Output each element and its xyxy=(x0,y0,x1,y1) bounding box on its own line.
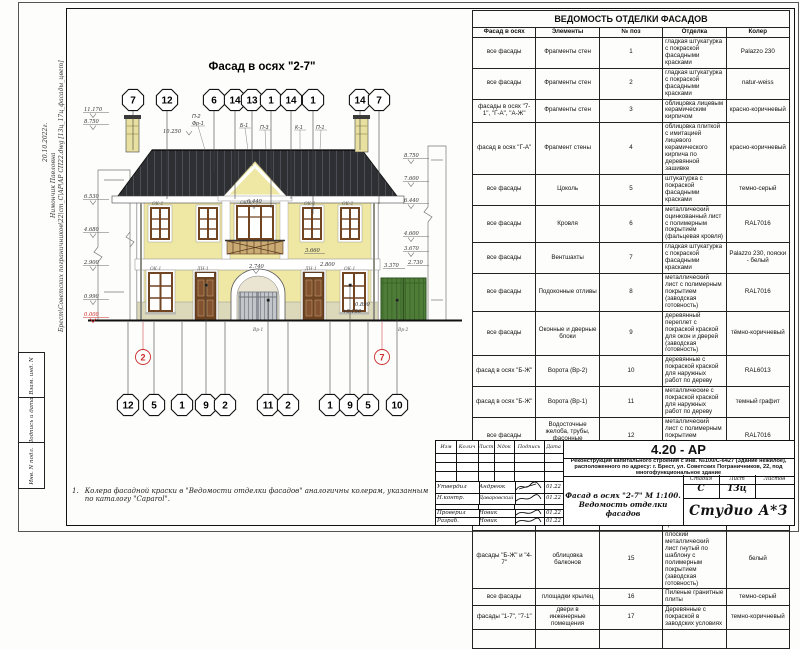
company-logo: Студио А*З xyxy=(683,498,794,525)
table-row: все фасадыЦоколь5штукатурка с покраской … xyxy=(473,174,790,205)
table-cell: металлические с покраской краской для на… xyxy=(663,387,726,418)
table-cell: красно-коричневый xyxy=(726,123,789,175)
table-cell: Фрагмент стены xyxy=(536,123,599,175)
level-mark-zero: 0.000 xyxy=(84,312,100,318)
part-labels: П-2 Фр-1 Б-1 П-3 К-1 П-1 xyxy=(191,114,327,150)
element-tag: ОК-2 xyxy=(304,202,315,207)
axis-bubble: 10 xyxy=(391,401,403,412)
sheet-number: 13ц xyxy=(719,484,756,499)
table-cell: 6 xyxy=(599,205,662,243)
finish-table-header-row: Фасад в осях Элементы № поз Отделка Коле… xyxy=(473,28,790,38)
axis-bubble: 1 xyxy=(179,401,185,412)
table-cell: все фасады xyxy=(473,68,536,99)
table-cell: Подоконные отливы xyxy=(536,274,599,312)
stamp-box-vzam: Взам. инд. N xyxy=(18,352,45,399)
meta-author-vertical: Нимончик Павловна xyxy=(50,153,57,218)
element-tag: ДН-1 xyxy=(304,267,317,272)
chimney-left xyxy=(124,115,141,152)
signature-scribble xyxy=(514,517,545,525)
drawing-sheet: { "sheet": { "meta_vertical": { "date": … xyxy=(0,0,800,533)
table-cell: 3 xyxy=(599,99,662,123)
table-row xyxy=(473,630,790,649)
table-cell: фасад в осях "Б-Ж" xyxy=(473,387,536,418)
level-mark: 8.750 xyxy=(84,119,100,125)
arch-gate xyxy=(231,269,285,320)
table-cell: RAL7016 xyxy=(726,274,789,312)
table-cell: красно-коричневый xyxy=(726,99,789,123)
axis-bubble: 2 xyxy=(285,401,291,412)
axis-bubble: 5 xyxy=(365,401,371,412)
levels-left: 11.170 8.750 6.530 4.680 2.900 0.990 0.0… xyxy=(83,107,109,323)
table-row: все фасадыВентшахты7гладкая штукатурка с… xyxy=(473,243,790,274)
level-mark: 3.670 xyxy=(404,246,420,252)
part-label: П-2 xyxy=(192,114,200,120)
table-row: фасады в осях "7-1", "Г-А", "А-Ж"Фрагмен… xyxy=(473,99,790,123)
red-circle-label: 2 xyxy=(140,353,145,363)
axis-bubble: 1 xyxy=(310,96,316,107)
table-cell: Фрагменты стен xyxy=(536,68,599,99)
table-cell: 4 xyxy=(599,123,662,175)
table-cell: 8 xyxy=(599,274,662,312)
meta-date-vertical: 20.10.2022г. xyxy=(42,123,49,162)
doc-title-cell: Фасад в осях "2-7" М 1:100. Ведомость от… xyxy=(563,475,684,525)
table-cell: гладкая штукатурка с покраской фасадными… xyxy=(663,68,726,99)
overall-dim: 10.250 xyxy=(163,129,192,135)
balcony-balustrade xyxy=(225,241,285,255)
axis-bubble: 14 xyxy=(229,96,241,107)
green-gate xyxy=(381,278,426,320)
table-cell xyxy=(663,630,726,649)
facade-note: 1. Колера фасадной краски в "Ведомости о… xyxy=(72,487,442,503)
logo-text: Студио А*З xyxy=(683,503,794,519)
table-cell xyxy=(536,630,599,649)
facade-title: Фасад в осях "2-7" xyxy=(209,61,316,73)
table-cell: фасады "1-7", "7-1" xyxy=(473,606,536,630)
table-cell: фасады "Б-Ж" и "4-7" xyxy=(473,530,536,589)
table-row: фасады "1-7", "7-1"двери в инженерные по… xyxy=(473,606,790,630)
table-row: все фасадыКровля6металлический оцинкован… xyxy=(473,205,790,243)
table-cell: Palazzo 230, пояски - белый xyxy=(726,243,789,274)
table-cell xyxy=(726,630,789,649)
axis-bubble: 2 xyxy=(222,401,228,412)
table-cell xyxy=(599,630,662,649)
axis-bubble: 9 xyxy=(203,401,209,412)
table-cell: 11 xyxy=(599,387,662,418)
level-mark: 11.170 xyxy=(84,107,103,113)
table-cell: все фасады xyxy=(473,205,536,243)
table-cell: 1 xyxy=(599,38,662,69)
col-header: Колер xyxy=(726,28,789,38)
table-cell: все фасады xyxy=(473,38,536,69)
finish-table-title: ВЕДОМОСТЬ ОТДЕЛКИ ФАСАДОВ xyxy=(473,11,790,28)
document-code: 4.20 - АР xyxy=(563,441,794,459)
table-cell: Фрагменты стен xyxy=(536,99,599,123)
doc-title-line2: Ведомость отделки фасадов xyxy=(563,500,683,518)
table-cell: фасады в осях "7-1", "Г-А", "А-Ж" xyxy=(473,99,536,123)
axis-bubble: 9 xyxy=(347,401,353,412)
table-cell: гладкая штукатурка с покраской фасадными… xyxy=(663,38,726,69)
table-row: фасады "Б-Ж" и "4-7"облицовка балконов15… xyxy=(473,530,790,589)
table-cell: все фасады xyxy=(473,174,536,205)
doc-title-line1: Фасад в осях "2-7" М 1:100. xyxy=(563,491,683,500)
table-cell: 15 xyxy=(599,530,662,589)
level-mark: 6.530 xyxy=(84,194,100,200)
table-cell: темно-серый xyxy=(726,589,789,606)
table-cell: белый xyxy=(726,530,789,589)
sig-role: Разраб. xyxy=(436,517,480,525)
stage-value: С xyxy=(683,484,720,499)
table-cell: двери в инженерные помещения xyxy=(536,606,599,630)
table-row: все фасадыФрагменты стен1гладкая штукату… xyxy=(473,38,790,69)
table-cell: штукатурка с покраской фасадными краскам… xyxy=(663,174,726,205)
table-cell: облицовка лицевым керамическим кирпичом xyxy=(663,99,726,123)
axis-bubble: 7 xyxy=(130,96,136,107)
axis-bubble: 1 xyxy=(268,96,274,107)
axis-bubble: 6 xyxy=(211,96,217,107)
note-number: 1. xyxy=(72,487,79,495)
table-cell: 5 xyxy=(599,174,662,205)
element-tag: ОК-1 xyxy=(344,267,355,272)
level-mark: 7.600 xyxy=(404,176,420,182)
element-tag: ОК-1 xyxy=(150,267,161,272)
level-mark: 4.680 xyxy=(83,227,100,233)
note-text-line1: Колера фасадной краски в "Ведомости отде… xyxy=(85,487,429,495)
table-cell: 2 xyxy=(599,68,662,99)
table-cell: плоский металлический лист гнутый по шаб… xyxy=(663,530,726,589)
balcony-door xyxy=(234,204,276,241)
table-row: фасад в осях "Б-Ж"Ворота (Вр-2)10деревян… xyxy=(473,356,790,387)
col-header: № поз xyxy=(599,28,662,38)
table-row: фасад в осях "Г-А"Фрагмент стены4облицов… xyxy=(473,123,790,175)
level-mark: 0.990 xyxy=(84,294,100,300)
chimney-right xyxy=(353,115,370,152)
stamp-label: Взам. инд. N xyxy=(29,357,35,394)
table-cell: темно-серый xyxy=(726,174,789,205)
facade-drawing: Фасад в осях "2-7" xyxy=(66,10,468,432)
axis-bubble: 13 xyxy=(246,96,258,107)
axis-bubble: 7 xyxy=(376,96,382,107)
sig-name: Новик xyxy=(478,517,516,525)
table-cell: Фрагменты стен xyxy=(536,38,599,69)
table-cell: RAL7016 xyxy=(726,205,789,243)
table-cell: темный графит xyxy=(726,387,789,418)
table-cell: облицовка плиткой с имитацией лицевого к… xyxy=(663,123,726,175)
right-annex-outline xyxy=(424,146,446,320)
table-cell: площадки крылец xyxy=(536,589,599,606)
axis-bubble: 14 xyxy=(285,96,297,107)
element-tag: Вр-1 xyxy=(252,328,263,333)
table-cell: все фасады xyxy=(473,274,536,312)
level-mark: 6.440 xyxy=(404,198,420,204)
element-tag: Вр-2 xyxy=(397,328,409,333)
element-tag: ОК-2 xyxy=(342,202,353,207)
dim-text: +0.150 xyxy=(342,309,362,315)
table-cell: Вентшахты xyxy=(536,243,599,274)
element-tag: ДН-1 xyxy=(196,267,209,272)
stamp-label: Инв. N подл. xyxy=(29,447,35,484)
table-cell: Palazzo 230 xyxy=(726,38,789,69)
table-cell: металлический лист с полимерным покрытие… xyxy=(663,274,726,312)
level-mark: 3.370 xyxy=(384,263,400,269)
table-cell: Оконные и дверные блоки xyxy=(536,311,599,356)
sig-date: 01.22 xyxy=(544,517,564,525)
axis-bubble: 1 xyxy=(327,401,333,412)
axis-bubble: 14 xyxy=(354,96,366,107)
level-mark: 4.600 xyxy=(403,231,420,237)
dim-text: 3.660 xyxy=(305,248,321,254)
table-cell: 10 xyxy=(599,356,662,387)
levels-right: 8.750 7.600 6.440 4.600 3.670 3.370 2.73… xyxy=(383,153,429,269)
table-row: все фасадыПодоконные отливы8металлически… xyxy=(473,274,790,312)
table-cell: 17 xyxy=(599,606,662,630)
sheets-total xyxy=(755,484,794,499)
meta-filepath-vertical: Брест\Советских пограничников\22\cm_C\АР… xyxy=(58,60,65,332)
table-cell: деревянные с покраской краской для наруж… xyxy=(663,356,726,387)
axis-bubble: 11 xyxy=(263,401,274,412)
axis-bubble: 12 xyxy=(122,401,134,412)
table-cell xyxy=(473,630,536,649)
table-cell: все фасады xyxy=(473,589,536,606)
level-mark: 2.900 xyxy=(83,260,100,266)
note-text-line2: по каталогу "Caparol". xyxy=(85,495,170,503)
table-cell: фасад в осях "Г-А" xyxy=(473,123,536,175)
axis-bubbles-bottom: 12 5 1 9 2 11 2 1 9 5 10 xyxy=(117,394,407,415)
table-cell: Пиленые гранитные плиты xyxy=(663,589,726,606)
table-cell: деревянный переплет с покраской краской … xyxy=(663,311,726,356)
table-cell: Ворота (Вр-2) xyxy=(536,356,599,387)
table-row: фасад в осях "Б-Ж"Ворота (Вр-1)11металли… xyxy=(473,387,790,418)
element-tag: ОК-2 xyxy=(152,202,163,207)
table-cell: Кровля xyxy=(536,205,599,243)
axis-bubble: 12 xyxy=(161,96,173,107)
red-circle-label: 7 xyxy=(379,353,384,363)
table-cell: RAL6013 xyxy=(726,356,789,387)
level-mark: 8.750 xyxy=(404,153,420,159)
table-row: все фасадыплощадки крылец16Пиленые грани… xyxy=(473,589,790,606)
table-cell: темно-коричневый xyxy=(726,606,789,630)
table-row: все фасадыФрагменты стен2гладкая штукату… xyxy=(473,68,790,99)
table-cell: все фасады xyxy=(473,311,536,356)
table-cell: Ворота (Вр-1) xyxy=(536,387,599,418)
table-cell: облицовка балконов xyxy=(536,530,599,589)
finish-table: ВЕДОМОСТЬ ОТДЕЛКИ ФАСАДОВ Фасад в осях Э… xyxy=(472,10,790,649)
table-cell: 16 xyxy=(599,589,662,606)
table-row: все фасадыОконные и дверные блоки9деревя… xyxy=(473,311,790,356)
stamp-box-podpis: Подпись и дата xyxy=(18,397,45,444)
stamp-label: Подпись и дата xyxy=(29,397,35,444)
element-tag: ОК-3 xyxy=(240,201,251,206)
axis-bubble: 5 xyxy=(151,401,157,412)
col-header: Элементы xyxy=(536,28,599,38)
table-cell: 9 xyxy=(599,311,662,356)
stamp-box-inv: Инв. N подл. xyxy=(18,442,45,489)
title-block: Изм Колич Лист Nдок Подпись Дата Утверди… xyxy=(435,440,795,526)
col-header: Отделка xyxy=(663,28,726,38)
level-mark: 2.730 xyxy=(407,260,424,266)
dim-text: 10.250 xyxy=(163,129,182,135)
table-cell: фасад в осях "Б-Ж" xyxy=(473,356,536,387)
dim-text: 2.800 xyxy=(319,262,336,268)
table-cell: Деревянные с покраской в заводских услов… xyxy=(663,606,726,630)
table-cell: Цоколь xyxy=(536,174,599,205)
table-cell: natur-weiss xyxy=(726,68,789,99)
table-cell: 7 xyxy=(599,243,662,274)
dim-text: 0.890 xyxy=(355,302,371,308)
col-header: Фасад в осях xyxy=(473,28,536,38)
table-cell: тёмно-коричневый xyxy=(726,311,789,356)
dim-text: 2.740 xyxy=(248,264,265,270)
table-cell: гладкая штукатурка с покраской фасадными… xyxy=(663,243,726,274)
axis-bubbles-top: 7 12 6 14 13 1 14 1 14 7 xyxy=(122,89,389,110)
table-cell: металлический оцинкованный лист с полиме… xyxy=(663,205,726,243)
table-cell: все фасады xyxy=(473,243,536,274)
